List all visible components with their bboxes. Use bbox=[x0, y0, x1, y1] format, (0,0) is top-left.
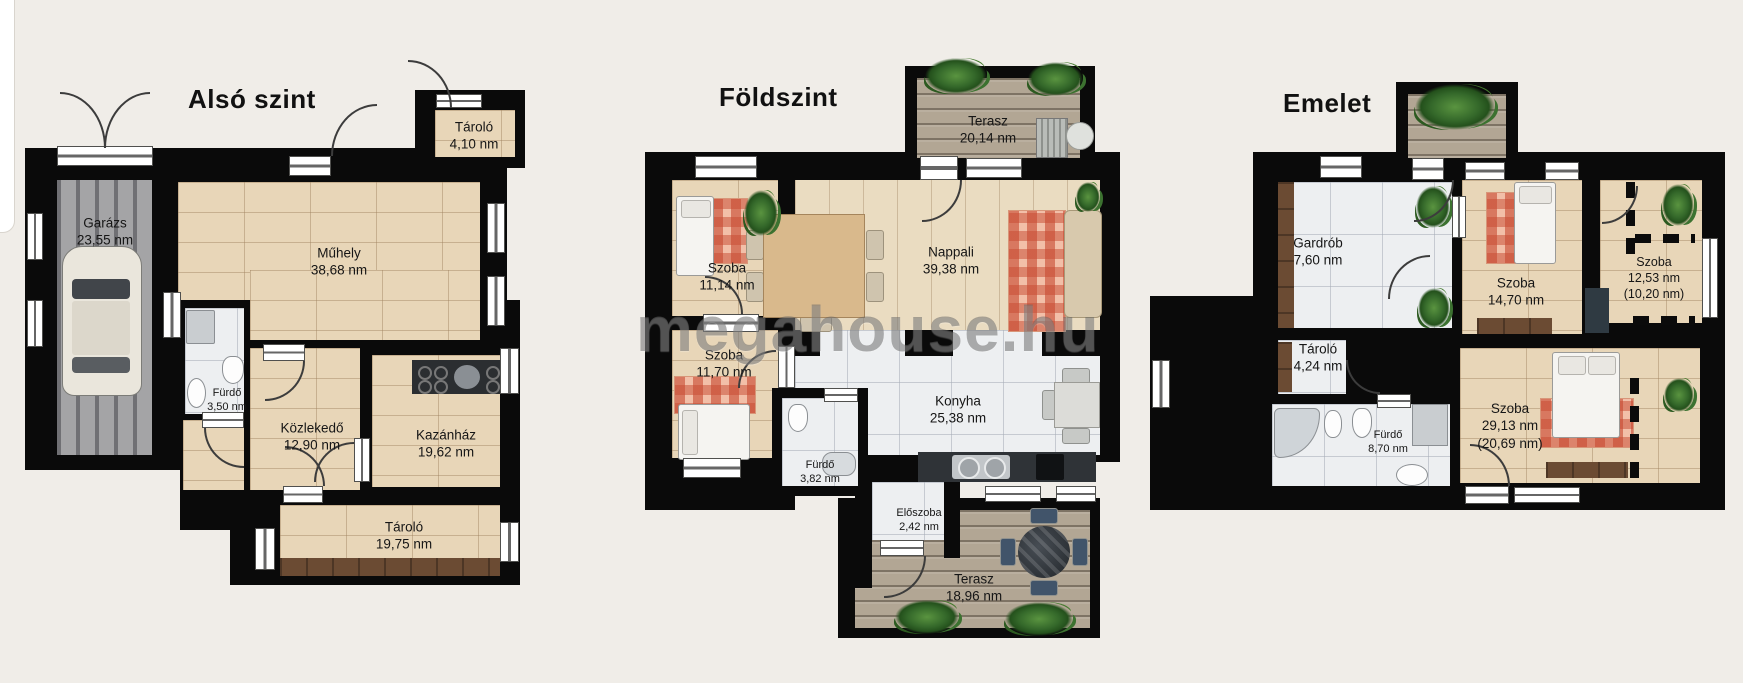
room-label-tarolo-kis: Tároló4,10 nm bbox=[450, 119, 499, 154]
dresser bbox=[1477, 318, 1552, 334]
window bbox=[500, 348, 519, 394]
wall-eloszoba bbox=[855, 498, 872, 588]
burner bbox=[434, 380, 448, 394]
room-label-konyha: Konyha25,38 nm bbox=[930, 393, 986, 428]
toilet bbox=[222, 356, 244, 384]
plan-title-emelet: Emelet bbox=[1283, 88, 1371, 119]
window bbox=[1465, 162, 1505, 180]
door bbox=[880, 540, 924, 556]
chair bbox=[1030, 580, 1058, 596]
room-label-kazanhaz: Kazánház19,62 nm bbox=[416, 427, 476, 462]
door-arc bbox=[331, 104, 377, 156]
room-label-szoba-1253: Szoba12,53 nm(10,20 nm) bbox=[1624, 254, 1684, 302]
pillow bbox=[1558, 356, 1586, 375]
window bbox=[1545, 162, 1579, 180]
terrace-round-table bbox=[1066, 122, 1094, 150]
shower bbox=[1412, 404, 1448, 446]
chair bbox=[1000, 538, 1016, 566]
door bbox=[289, 156, 331, 176]
chair bbox=[1072, 538, 1088, 566]
watermark: megahouse.hu bbox=[636, 292, 1100, 366]
room-label-szoba-a: Szoba11,14 nm bbox=[699, 260, 754, 295]
room-label-tarolo-emelet: Tároló4,24 nm bbox=[1294, 341, 1343, 376]
garage-door bbox=[57, 146, 153, 166]
pillow bbox=[1588, 356, 1616, 375]
window bbox=[695, 156, 757, 178]
double-bed bbox=[1552, 352, 1620, 438]
burner bbox=[486, 380, 500, 394]
window bbox=[1702, 238, 1718, 318]
car-roof bbox=[72, 301, 130, 355]
door-arc bbox=[104, 92, 150, 148]
room-label-gardrob: Gardrób7,60 nm bbox=[1293, 235, 1343, 270]
burner bbox=[418, 366, 432, 380]
room-label-terasz-felso: Terasz20,14 nm bbox=[960, 113, 1016, 148]
rug bbox=[712, 198, 748, 264]
window bbox=[985, 486, 1041, 502]
room-label-furdo-emelet: Fürdő8,70 nm bbox=[1368, 428, 1408, 456]
tv-cabinet bbox=[1585, 288, 1609, 333]
burner bbox=[486, 366, 500, 380]
bidet bbox=[1324, 410, 1342, 438]
door bbox=[1452, 196, 1466, 238]
room-label-garazs: Garázs23,55 nm bbox=[77, 215, 133, 250]
window bbox=[487, 276, 505, 326]
car-rear-window bbox=[72, 357, 130, 373]
door bbox=[1377, 394, 1411, 408]
door bbox=[202, 412, 244, 428]
bed bbox=[678, 404, 750, 460]
pillow bbox=[682, 410, 698, 454]
door bbox=[824, 388, 858, 402]
bed bbox=[1514, 182, 1556, 264]
door bbox=[163, 292, 181, 338]
window bbox=[500, 522, 519, 562]
window bbox=[1320, 156, 1362, 178]
desk bbox=[1546, 462, 1628, 478]
door bbox=[283, 486, 323, 503]
room-label-szoba-1470: Szoba14,70 nm bbox=[1488, 275, 1544, 310]
window bbox=[27, 300, 43, 347]
rug bbox=[1486, 192, 1516, 264]
car-windshield bbox=[72, 279, 130, 299]
pillow bbox=[1519, 186, 1552, 204]
door bbox=[354, 438, 370, 482]
floor-muhely bbox=[250, 270, 480, 340]
wall-eloszoba bbox=[944, 498, 960, 558]
door-arc bbox=[60, 92, 106, 148]
terrace-table bbox=[1018, 526, 1070, 578]
floor-plan-canvas: Alsó szint bbox=[0, 0, 1743, 683]
sloped-ceiling-dash bbox=[1630, 378, 1639, 480]
room-label-tarolo-nagy: Tároló19,75 nm bbox=[376, 519, 432, 554]
boiler-stove bbox=[412, 360, 506, 394]
room-label-szoba-2913: Szoba29,13 nm(20,69 nm) bbox=[1477, 400, 1542, 452]
shower bbox=[186, 310, 215, 344]
room-label-muhely: Műhely38,68 nm bbox=[311, 245, 367, 280]
pillow bbox=[681, 200, 711, 218]
door-arc bbox=[408, 60, 452, 108]
burner bbox=[418, 380, 432, 394]
window bbox=[683, 458, 741, 478]
room-label-eloszoba: Előszoba2,42 nm bbox=[896, 506, 941, 534]
stove-icon bbox=[1036, 454, 1064, 480]
window bbox=[487, 203, 505, 253]
window bbox=[27, 213, 43, 260]
shelf bbox=[1278, 342, 1292, 392]
deck-edge bbox=[280, 558, 500, 576]
room-label-furdo-foldszint: Fürdő3,82 nm bbox=[800, 458, 840, 486]
sink-bowl bbox=[984, 457, 1006, 479]
sink-bowl bbox=[958, 457, 980, 479]
room-label-terasz-also: Terasz18,96 nm bbox=[946, 571, 1002, 606]
burner bbox=[434, 366, 448, 380]
page-corner-artifact bbox=[0, 0, 15, 233]
window bbox=[966, 158, 1022, 178]
lounge-chair bbox=[1036, 118, 1068, 158]
room-label-kozlekedo: Közlekedő12,90 nm bbox=[280, 420, 343, 455]
wardrobe bbox=[1278, 182, 1294, 328]
door bbox=[263, 344, 305, 361]
window bbox=[1152, 360, 1170, 408]
plan-title-also-szint: Alsó szint bbox=[188, 84, 316, 115]
sink bbox=[187, 378, 206, 408]
toilet bbox=[788, 404, 808, 432]
kitchen-counter bbox=[918, 452, 1096, 482]
door bbox=[920, 156, 958, 180]
plan-title-foldszint: Földszint bbox=[719, 82, 838, 113]
chair bbox=[866, 230, 884, 260]
door bbox=[1412, 158, 1444, 180]
sloped-ceiling-dash bbox=[1633, 316, 1695, 325]
car bbox=[62, 246, 142, 396]
burner-center bbox=[454, 365, 480, 389]
window bbox=[1056, 486, 1096, 502]
kitchen-table bbox=[1054, 382, 1100, 428]
sink bbox=[1396, 464, 1428, 486]
window bbox=[1514, 487, 1580, 503]
door bbox=[1465, 486, 1509, 504]
room-label-nappali: Nappali39,38 nm bbox=[923, 244, 979, 279]
chair bbox=[1062, 428, 1090, 444]
chair bbox=[1030, 508, 1058, 524]
sloped-ceiling-dash bbox=[1635, 234, 1695, 243]
window bbox=[255, 528, 275, 570]
room-label-furdo: Fürdő3,50 nm bbox=[207, 386, 247, 414]
